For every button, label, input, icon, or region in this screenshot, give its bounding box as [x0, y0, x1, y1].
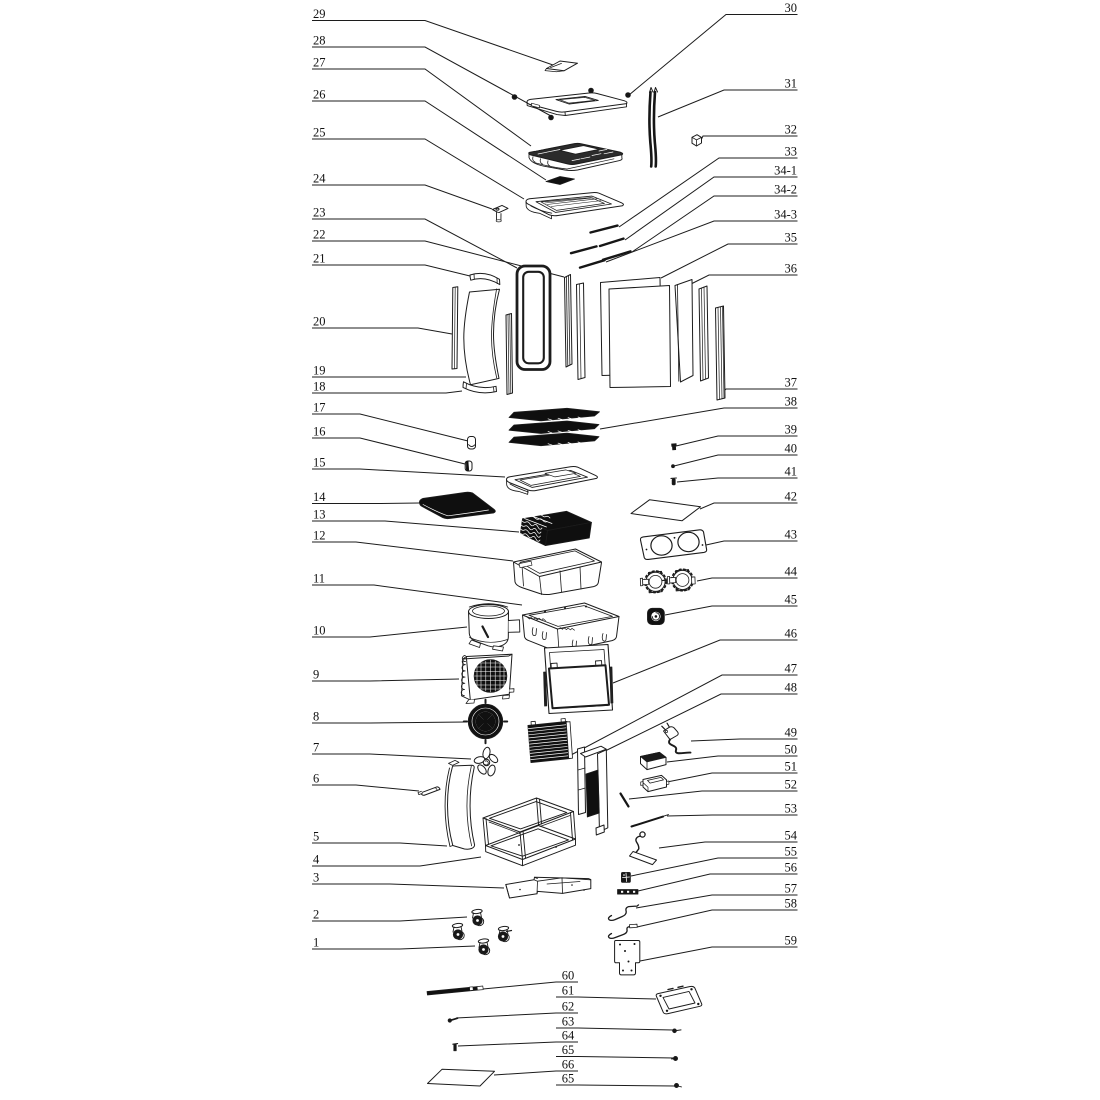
svg-text:9: 9: [313, 668, 319, 682]
svg-text:21: 21: [313, 252, 326, 266]
svg-text:50: 50: [785, 743, 798, 757]
svg-text:54: 54: [785, 829, 798, 843]
svg-text:24: 24: [313, 172, 326, 186]
svg-text:37: 37: [785, 376, 798, 390]
svg-text:12: 12: [313, 529, 326, 543]
svg-text:7: 7: [313, 741, 319, 755]
svg-text:33: 33: [785, 145, 798, 159]
svg-text:34-1: 34-1: [774, 164, 797, 178]
svg-text:65: 65: [562, 1072, 575, 1086]
svg-text:57: 57: [785, 882, 798, 896]
svg-text:34-3: 34-3: [774, 208, 797, 222]
svg-text:34-2: 34-2: [774, 183, 797, 197]
svg-text:27: 27: [313, 56, 326, 70]
svg-text:1: 1: [313, 936, 319, 950]
svg-text:47: 47: [785, 662, 798, 676]
svg-text:63: 63: [562, 1015, 575, 1029]
svg-text:61: 61: [562, 984, 575, 998]
svg-text:40: 40: [785, 442, 798, 456]
svg-text:58: 58: [785, 897, 798, 911]
svg-text:26: 26: [313, 88, 326, 102]
svg-text:14: 14: [313, 490, 326, 504]
svg-text:62: 62: [562, 1000, 575, 1014]
svg-text:2: 2: [313, 908, 319, 922]
svg-text:38: 38: [785, 395, 798, 409]
svg-text:46: 46: [785, 627, 798, 641]
svg-text:42: 42: [785, 490, 798, 504]
svg-text:22: 22: [313, 228, 326, 242]
svg-text:5: 5: [313, 830, 319, 844]
svg-text:56: 56: [785, 861, 798, 875]
svg-text:48: 48: [785, 681, 798, 695]
svg-text:11: 11: [313, 572, 325, 586]
svg-text:53: 53: [785, 802, 798, 816]
svg-text:39: 39: [785, 423, 798, 437]
svg-text:16: 16: [313, 425, 326, 439]
svg-text:49: 49: [785, 726, 798, 740]
svg-text:3: 3: [313, 871, 319, 885]
svg-text:59: 59: [785, 934, 798, 948]
svg-text:60: 60: [562, 969, 575, 983]
svg-text:64: 64: [562, 1029, 575, 1043]
svg-text:29: 29: [313, 7, 326, 21]
svg-text:65: 65: [562, 1043, 575, 1057]
svg-text:20: 20: [313, 315, 326, 329]
svg-text:31: 31: [785, 77, 798, 91]
svg-text:6: 6: [313, 772, 319, 786]
svg-text:41: 41: [785, 465, 798, 479]
svg-text:25: 25: [313, 126, 326, 140]
svg-text:30: 30: [785, 1, 798, 15]
svg-text:15: 15: [313, 456, 326, 470]
svg-text:8: 8: [313, 710, 319, 724]
svg-text:10: 10: [313, 624, 326, 638]
svg-text:45: 45: [785, 593, 798, 607]
svg-text:51: 51: [785, 760, 798, 774]
svg-text:35: 35: [785, 231, 798, 245]
svg-text:18: 18: [313, 380, 326, 394]
svg-text:13: 13: [313, 508, 326, 522]
svg-text:32: 32: [785, 123, 798, 137]
svg-text:4: 4: [313, 853, 320, 867]
svg-text:44: 44: [785, 565, 798, 579]
svg-text:28: 28: [313, 34, 326, 48]
svg-text:66: 66: [562, 1058, 575, 1072]
svg-text:52: 52: [785, 778, 798, 792]
svg-text:17: 17: [313, 401, 326, 415]
svg-text:43: 43: [785, 528, 798, 542]
svg-text:36: 36: [785, 262, 798, 276]
svg-text:23: 23: [313, 206, 326, 220]
svg-text:55: 55: [785, 845, 798, 859]
svg-text:19: 19: [313, 364, 326, 378]
